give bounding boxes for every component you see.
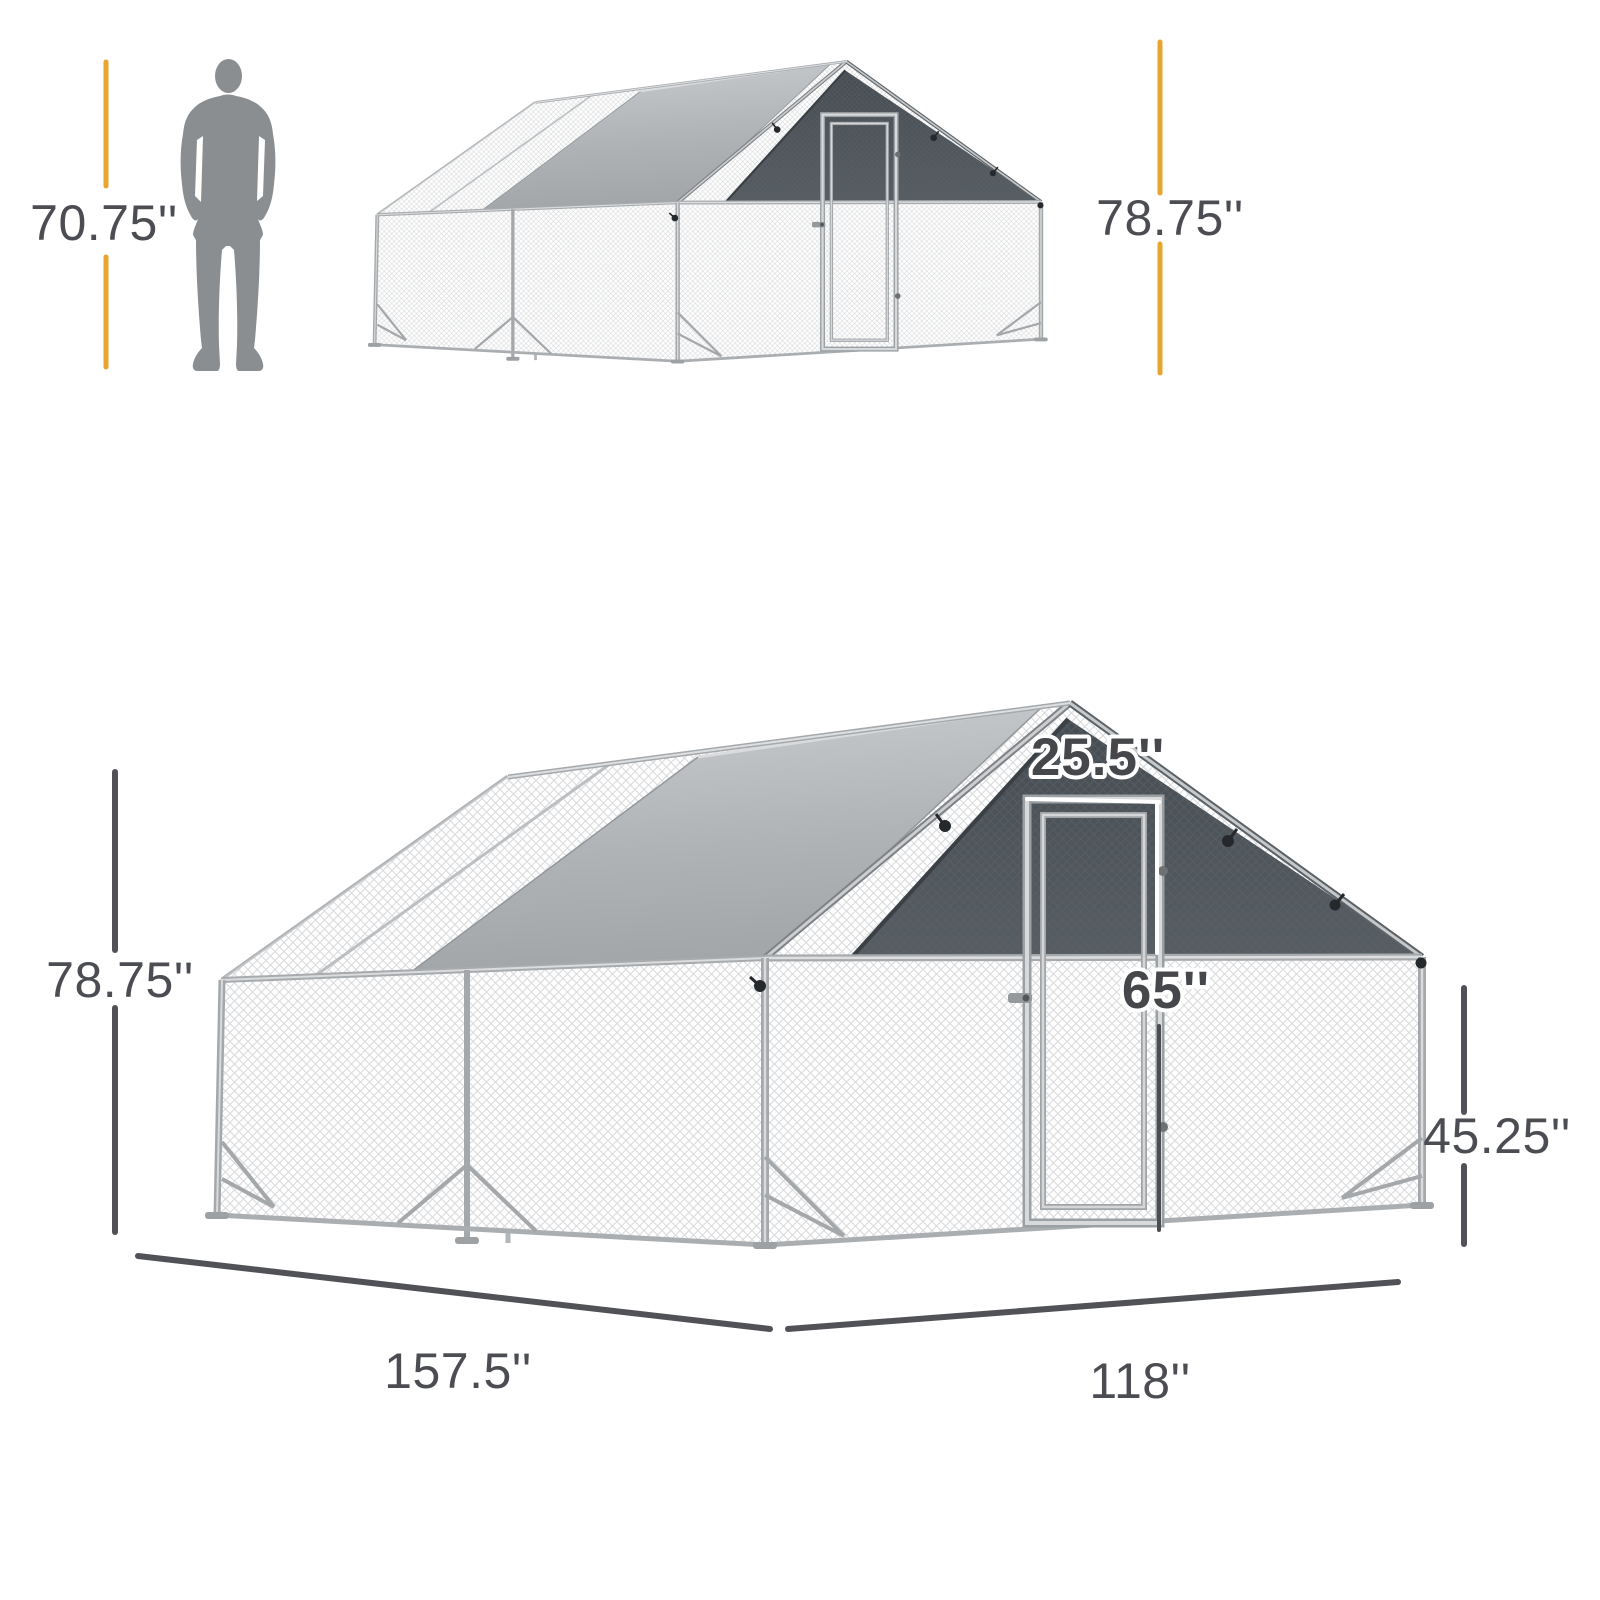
dimension-line-depth: [788, 1282, 1398, 1329]
total-height-label: 78.75'': [46, 952, 194, 1008]
side-wall-height-label: 45.25'': [1423, 1108, 1571, 1164]
coop-height-dimension-top: 78.75'': [1096, 42, 1244, 373]
coop-illustration-large: [205, 703, 1434, 1249]
dimension-line-length: [138, 1256, 770, 1329]
door-width-label: 25.5'': [1031, 728, 1165, 787]
person-silhouette: [181, 59, 276, 371]
door-height-label: 65'': [1122, 961, 1210, 1020]
depth-label: 118'': [1089, 1353, 1190, 1409]
side-wall-height-dimension: 45.25'': [1423, 988, 1571, 1244]
length-label: 157.5'': [384, 1343, 532, 1399]
scale-view: 70.75'' 78.75'': [30, 42, 1244, 373]
total-height-dimension: 78.75'': [46, 772, 194, 1232]
depth-dimension: 118'': [788, 1282, 1398, 1409]
person-height-label: 70.75'': [30, 195, 178, 251]
product-dimension-diagram: 70.75'' 78.75'' 78.75'' 25.5'' 65'': [0, 0, 1600, 1600]
coop-height-label-top: 78.75'': [1096, 190, 1244, 246]
diagram-canvas: 70.75'' 78.75'' 78.75'' 25.5'' 65'': [0, 0, 1600, 1600]
person-height-dimension: 70.75'': [30, 62, 178, 367]
dimension-view: 78.75'' 25.5'' 65'' 45.25'' 157.5'' 118'…: [46, 703, 1571, 1409]
coop-illustration-small: [368, 62, 1048, 364]
length-dimension: 157.5'': [138, 1256, 770, 1399]
